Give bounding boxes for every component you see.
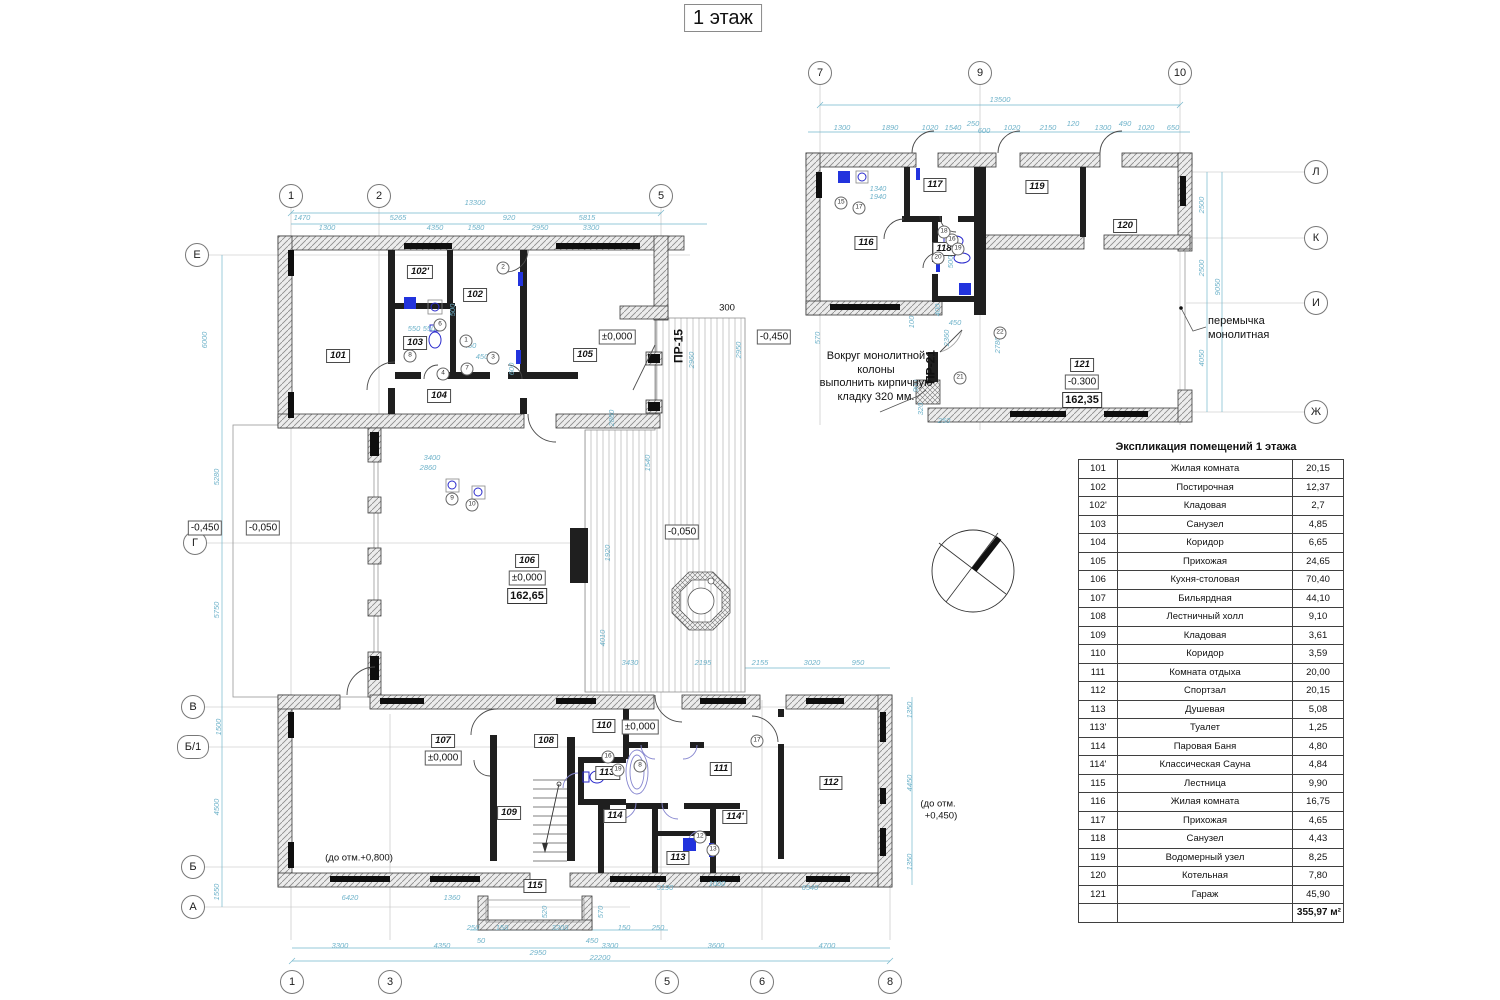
axis-marker: 2 (367, 184, 391, 208)
axis-marker: 1 (280, 970, 304, 994)
room-number-cell: 105 (1079, 552, 1118, 571)
elevation-label: -0.300 (1065, 375, 1099, 390)
room-number-cell: 115 (1079, 774, 1118, 793)
table-row: 121Гараж45,90 (1079, 885, 1344, 904)
reference-marker: 4 (437, 368, 450, 381)
table-row: 105Прихожая24,65 (1079, 552, 1344, 571)
room-area-cell: 3,59 (1293, 645, 1344, 664)
table-row: 114Паровая Баня4,80 (1079, 737, 1344, 756)
room-area-cell: 1,25 (1293, 719, 1344, 738)
room-number-label: 107 (431, 734, 455, 748)
text-label: ПР-15 (674, 329, 685, 363)
axis-marker: 9 (968, 61, 992, 85)
table-row: 102Постирочная12,37 (1079, 478, 1344, 497)
axis-marker: Л (1304, 160, 1328, 184)
annotation-line: кладку 320 мм. (795, 391, 957, 405)
dimension-label: 500 (947, 256, 955, 269)
dimension-label: 1300 (834, 124, 851, 132)
dimension-label: 650 (1167, 124, 1180, 132)
reference-marker: 17 (751, 735, 764, 748)
reference-marker: 19 (612, 764, 625, 777)
dimension-label: 6000 (201, 332, 209, 349)
dimension-label: 3300 (583, 224, 600, 232)
axis-marker: 5 (655, 970, 679, 994)
room-number-cell: 106 (1079, 571, 1118, 590)
annotation-line: монолитная (1208, 329, 1269, 343)
dimension-label: 1940 (870, 193, 887, 201)
elevation-label: -0,050 (665, 525, 699, 540)
dimension-label: 13500 (990, 96, 1011, 104)
room-number-cell: 118 (1079, 830, 1118, 849)
room-area-cell: 44,10 (1293, 589, 1344, 608)
room-number-cell: 102' (1079, 497, 1118, 516)
dimension-label: 1300 (319, 224, 336, 232)
dimension-label: 120 (1067, 120, 1080, 128)
room-number-label: 117 (923, 178, 946, 192)
room-number-cell: 113' (1079, 719, 1118, 738)
room-area-cell: 24,65 (1293, 552, 1344, 571)
reference-marker: 8 (404, 350, 417, 363)
dimension-label: 50 (477, 937, 485, 945)
dimension-label: 2500 (1198, 197, 1206, 214)
dimension-label: 2860 (420, 464, 437, 472)
dimension-label: 520 (541, 906, 549, 919)
dimension-label: 320 (917, 403, 925, 416)
room-number-cell: 120 (1079, 867, 1118, 886)
axis-marker: 7 (808, 61, 832, 85)
dimension-label: 920 (503, 214, 516, 222)
table-row: 103Санузел4,85 (1079, 515, 1344, 534)
dimension-label: 3300 (602, 942, 619, 950)
axis-marker: Б (181, 855, 205, 879)
room-area-cell: 9,90 (1293, 774, 1344, 793)
room-name-cell: Гараж (1118, 885, 1293, 904)
room-number-cell: 101 (1079, 460, 1118, 479)
reference-marker: 20 (932, 252, 945, 265)
elevation-label: ±0,000 (425, 751, 462, 766)
dimension-label: 9050 (1214, 279, 1222, 296)
room-area-cell: 20,00 (1293, 663, 1344, 682)
room-number-cell: 109 (1079, 626, 1118, 645)
table-row: 112Спортзал20,15 (1079, 682, 1344, 701)
table-total-row: 355,97 м² (1079, 904, 1344, 923)
dimension-label: 3430 (622, 659, 639, 667)
reference-marker: 3 (487, 352, 500, 365)
dimension-label: 2195 (695, 659, 712, 667)
dimension-label: 5815 (579, 214, 596, 222)
dimension-label: 4350 (434, 942, 451, 950)
dimension-label: 5750 (213, 602, 221, 619)
elevation-label: 162,65 (507, 588, 547, 604)
table-row: 108Лестничный холл9,10 (1079, 608, 1344, 627)
axis-marker: 5 (649, 184, 673, 208)
room-name-cell: Паровая Баня (1118, 737, 1293, 756)
dimension-label: 2950 (532, 224, 549, 232)
room-number-cell: 103 (1079, 515, 1118, 534)
room-number-label: 116 (854, 236, 877, 250)
dimension-label: 3300 (332, 942, 349, 950)
room-number-label: 102 (463, 288, 487, 302)
room-name-cell: Коридор (1118, 645, 1293, 664)
room-area-cell: 45,90 (1293, 885, 1344, 904)
room-name-cell: Лестничный холл (1118, 608, 1293, 627)
table-row: 118Санузел4,43 (1079, 830, 1344, 849)
room-area-cell: 16,75 (1293, 793, 1344, 812)
room-number-label: 105 (573, 348, 597, 362)
dimension-label: 1550 (213, 884, 221, 901)
dimension-label: 570 (597, 906, 605, 919)
text-label: (до отм. (920, 799, 955, 810)
room-area-cell: 7,80 (1293, 867, 1344, 886)
room-number-cell: 117 (1079, 811, 1118, 830)
table-row: 104Коридор6,65 (1079, 534, 1344, 553)
dimension-label: 1350 (906, 702, 914, 719)
dimension-label: 1020 (922, 124, 939, 132)
dimension-label: 6540 (802, 884, 819, 892)
dimension-label: 4700 (819, 942, 836, 950)
room-number-label: 103 (403, 336, 427, 350)
axis-marker: Ж (1304, 400, 1328, 424)
annotation-line: Вокруг монолитной (795, 350, 957, 364)
room-name-cell: Жилая комната (1118, 460, 1293, 479)
reference-marker: 6 (434, 319, 447, 332)
room-name-cell: Лестница (1118, 774, 1293, 793)
dimension-label: 2950 (735, 342, 743, 359)
dimension-label: 1000 (709, 880, 726, 888)
room-area-cell: 70,40 (1293, 571, 1344, 590)
room-number-cell: 119 (1079, 848, 1118, 867)
elevation-label: ±0,000 (622, 720, 659, 735)
reference-marker: 19 (952, 243, 965, 256)
annotation-brick-masonry: Вокруг монолитнойколонывыполнить кирпичн… (795, 350, 957, 404)
table-row: 107Бильярдная44,10 (1079, 589, 1344, 608)
dimension-label: 1540 (644, 455, 652, 472)
room-number-cell: 104 (1079, 534, 1118, 553)
dimension-label: 600 (508, 363, 516, 376)
room-name-cell: Котельная (1118, 867, 1293, 886)
axis-marker: Е (185, 243, 209, 267)
room-number-label: 109 (497, 806, 521, 820)
annotation-monolithic-lintel: перемычкамонолитная (1208, 315, 1269, 342)
room-name-cell: Комната отдыха (1118, 663, 1293, 682)
annotation-line: перемычка (1208, 315, 1269, 329)
room-area-cell: 4,80 (1293, 737, 1344, 756)
reference-marker: 22 (994, 327, 1007, 340)
dimension-label: 3200 (552, 924, 569, 932)
dimension-label: 3600 (708, 942, 725, 950)
room-number-cell: 113 (1079, 700, 1118, 719)
table-row: 119Водомерный узел8,25 (1079, 848, 1344, 867)
dimension-label: 2500 (1198, 260, 1206, 277)
room-schedule-title: Экспликация помещений 1 этажа (1115, 441, 1296, 453)
table-row: 109Кладовая3,61 (1079, 626, 1344, 645)
dimension-label: 2960 (688, 352, 696, 369)
dimension-label: 6420 (342, 894, 359, 902)
room-area-cell: 20,15 (1293, 682, 1344, 701)
room-name-cell: Туалет (1118, 719, 1293, 738)
room-number-label: 110 (592, 719, 615, 733)
room-number-label: 101 (326, 349, 350, 363)
room-number-label: 102' (407, 265, 433, 279)
room-area-cell: 3,61 (1293, 626, 1344, 645)
dimension-label: 4350 (427, 224, 444, 232)
elevation-label: -0,450 (188, 521, 222, 536)
elevation-label: ±0,000 (599, 330, 636, 345)
room-number-cell: 112 (1079, 682, 1118, 701)
dimension-label: 490 (1119, 120, 1132, 128)
room-name-cell: Прихожая (1118, 811, 1293, 830)
room-area-cell: 6,65 (1293, 534, 1344, 553)
dimension-label: 250 (467, 924, 480, 932)
reference-marker: 12 (694, 831, 707, 844)
reference-marker: 8 (634, 760, 647, 773)
axis-marker: И (1304, 291, 1328, 315)
room-name-cell: Душевая (1118, 700, 1293, 719)
axis-marker: К (1304, 226, 1328, 250)
room-name-cell: Постирочная (1118, 478, 1293, 497)
dimension-label: 150 (496, 924, 509, 932)
dimension-label: 5190 (657, 884, 674, 892)
text-label: (до отм.+0,800) (325, 853, 393, 864)
compass-north-arrow (932, 530, 1014, 612)
reference-marker: 1 (460, 335, 473, 348)
dimension-label: 1920 (604, 545, 612, 562)
dimension-label: 4010 (599, 630, 607, 647)
dimension-label: 100 (908, 316, 916, 329)
room-number-label: 112 (819, 776, 842, 790)
axis-marker: Б/1 (177, 735, 209, 759)
dimension-label: 1890 (882, 124, 899, 132)
room-area-cell: 4,85 (1293, 515, 1344, 534)
room-number-cell: 111 (1079, 663, 1118, 682)
room-area-cell: 8,25 (1293, 848, 1344, 867)
room-area-cell: 9,10 (1293, 608, 1344, 627)
room-number-cell: 114 (1079, 737, 1118, 756)
dimension-label: 1300 (1095, 124, 1112, 132)
text-label: 300 (719, 303, 735, 314)
dimension-label: 500 (449, 304, 457, 317)
dimension-label: 1470 (294, 214, 311, 222)
dimension-label: 150 (618, 924, 631, 932)
room-number-label: 121 (1070, 358, 1094, 372)
room-number-cell: 116 (1079, 793, 1118, 812)
dimension-label: 13300 (465, 199, 486, 207)
table-row: 102'Кладовая2,7 (1079, 497, 1344, 516)
dimension-label: 2950 (530, 949, 547, 957)
room-area-cell: 2,7 (1293, 497, 1344, 516)
table-row: 116Жилая комната16,75 (1079, 793, 1344, 812)
room-name-cell: Водомерный узел (1118, 848, 1293, 867)
axis-marker: 6 (750, 970, 774, 994)
table-row: 113Душевая5,08 (1079, 700, 1344, 719)
room-number-label: 106 (515, 554, 539, 568)
table-row: 117Прихожая4,65 (1079, 811, 1344, 830)
dimension-label: 450 (586, 937, 599, 945)
room-number-label: 111 (710, 762, 732, 776)
room-name-cell: Кухня-столовая (1118, 571, 1293, 590)
room-number-label: 119 (1025, 180, 1048, 194)
room-number-label: 108 (534, 734, 558, 748)
room-name-cell: Прихожая (1118, 552, 1293, 571)
room-number-label: 115 (523, 879, 546, 893)
reference-marker: 17 (853, 202, 866, 215)
dimension-label: 250 (938, 417, 951, 425)
dimension-label: 1500 (215, 719, 223, 736)
annotation-line: колоны (795, 364, 957, 378)
reference-marker: 15 (835, 197, 848, 210)
room-name-cell: Классическая Сауна (1118, 756, 1293, 775)
dimension-label: 4050 (1198, 350, 1206, 367)
room-area-cell: 12,37 (1293, 478, 1344, 497)
room-name-cell: Коридор (1118, 534, 1293, 553)
dimension-label: 450 (949, 319, 962, 327)
room-number-label: 104 (427, 389, 451, 403)
room-name-cell: Санузел (1118, 515, 1293, 534)
elevation-label: ±0,000 (509, 571, 546, 586)
room-number-label: 113 (666, 851, 689, 865)
page-title: 1 этаж (684, 4, 762, 32)
dimension-label: 1580 (468, 224, 485, 232)
room-area-cell: 4,84 (1293, 756, 1344, 775)
table-row: 113'Туалет1,25 (1079, 719, 1344, 738)
room-area-cell: 4,65 (1293, 811, 1344, 830)
dimension-label: 600 (978, 127, 991, 135)
dimension-label: 5265 (390, 214, 407, 222)
dimension-label: 3400 (424, 454, 441, 462)
reference-marker: 9 (446, 493, 459, 506)
elevation-label: 162,35 (1062, 392, 1102, 408)
axis-marker: В (181, 695, 205, 719)
elevation-label: -0,450 (757, 330, 791, 345)
dimension-label: 2360 (943, 330, 951, 347)
axis-marker: А (181, 895, 205, 919)
annotation-line: выполнить кирпичную (795, 377, 957, 391)
dimension-label: 22200 (590, 954, 611, 962)
reference-marker: 7 (461, 363, 474, 376)
dimension-label: 250 (652, 924, 665, 932)
axis-marker: 10 (1168, 61, 1192, 85)
dimension-label: 1350 (906, 854, 914, 871)
room-number-label: 114 (603, 809, 626, 823)
dimension-label: 570 (814, 332, 822, 345)
dimension-label: 4500 (213, 799, 221, 816)
table-row: 111Комната отдыха20,00 (1079, 663, 1344, 682)
dimension-label: 3020 (804, 659, 821, 667)
reference-marker: 2 (497, 262, 510, 275)
room-name-cell: Кладовая (1118, 497, 1293, 516)
room-number-cell: 110 (1079, 645, 1118, 664)
dimension-label: 2860 (608, 410, 616, 427)
reference-marker: 13 (707, 844, 720, 857)
floorplan-canvas: 1 этаж 12513568ЕГВБ/1БА7910ЛКИЖ101102'10… (0, 0, 1500, 1000)
room-number-cell: 114' (1079, 756, 1118, 775)
dimension-label: 400 (934, 304, 942, 317)
room-number-cell: 102 (1079, 478, 1118, 497)
room-name-cell: Жилая комната (1118, 793, 1293, 812)
room-number-cell: 107 (1079, 589, 1118, 608)
room-number-cell: 121 (1079, 885, 1118, 904)
room-number-cell: 108 (1079, 608, 1118, 627)
room-number-label: 114' (722, 810, 747, 824)
room-area-cell: 4,43 (1293, 830, 1344, 849)
table-row: 106Кухня-столовая70,40 (1079, 571, 1344, 590)
reference-marker: 10 (466, 499, 479, 512)
reference-marker: 16 (602, 751, 615, 764)
dimension-label: 1540 (945, 124, 962, 132)
room-name-cell: Спортзал (1118, 682, 1293, 701)
table-row: 115Лестница9,90 (1079, 774, 1344, 793)
axis-marker: 8 (878, 970, 902, 994)
room-name-cell: Кладовая (1118, 626, 1293, 645)
dimension-label: 4450 (906, 775, 914, 792)
staircase (533, 780, 567, 861)
room-schedule-table: 101Жилая комната20,15102Постирочная12,37… (1078, 459, 1344, 923)
room-name-cell: Бильярдная (1118, 589, 1293, 608)
dimension-label: 1020 (1004, 124, 1021, 132)
dimension-label: 1020 (1138, 124, 1155, 132)
room-area-cell: 5,08 (1293, 700, 1344, 719)
dimension-label: 550 (408, 325, 421, 333)
table-row: 114'Классическая Сауна4,84 (1079, 756, 1344, 775)
dimension-label: 2150 (1040, 124, 1057, 132)
dimension-label: 5280 (213, 469, 221, 486)
room-number-label: 120 (1113, 219, 1137, 233)
elevation-label: -0,050 (246, 521, 280, 536)
axis-marker: 1 (279, 184, 303, 208)
dimension-label: 950 (852, 659, 865, 667)
table-row: 101Жилая комната20,15 (1079, 460, 1344, 479)
table-row: 120Котельная7,80 (1079, 867, 1344, 886)
total-area-cell: 355,97 м² (1293, 904, 1344, 923)
room-name-cell: Санузел (1118, 830, 1293, 849)
axis-marker: 3 (378, 970, 402, 994)
dimension-label: 2155 (752, 659, 769, 667)
table-row: 110Коридор3,59 (1079, 645, 1344, 664)
text-label: +0,450) (925, 811, 958, 822)
reference-marker: 18 (938, 226, 951, 239)
room-area-cell: 20,15 (1293, 460, 1344, 479)
dimension-label: 1360 (444, 894, 461, 902)
